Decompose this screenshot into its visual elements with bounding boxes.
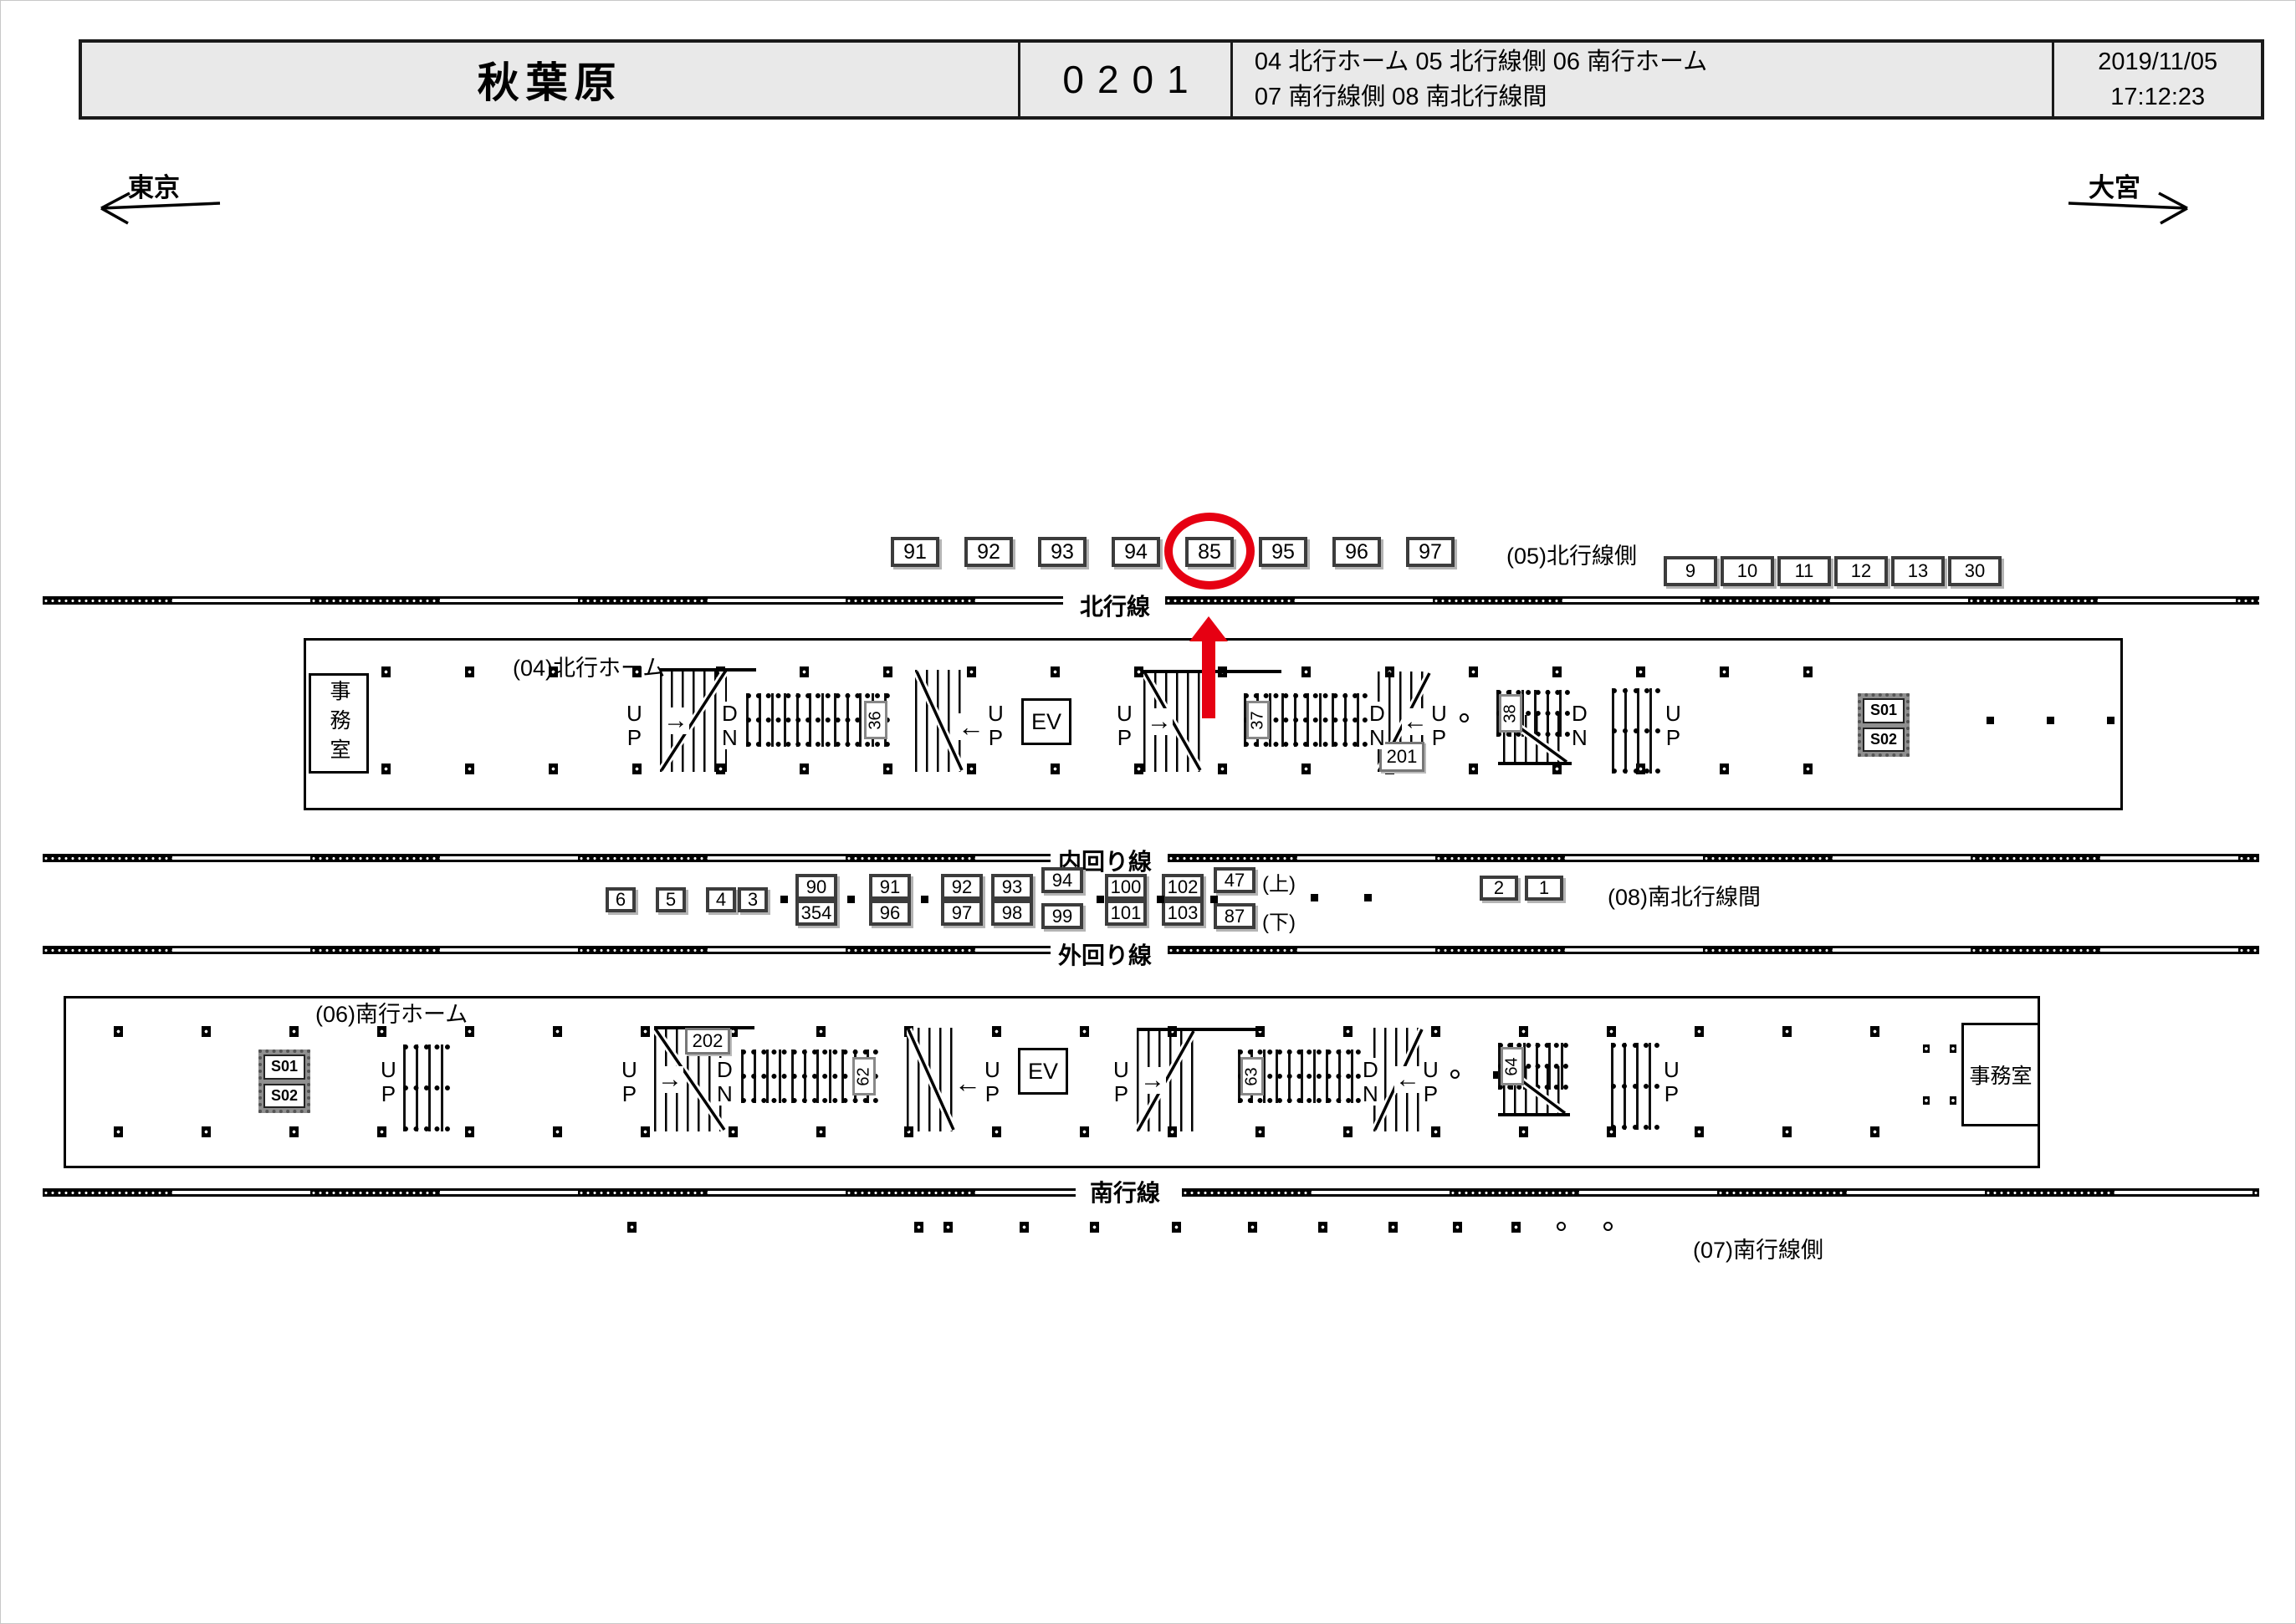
stair-direction-label: U P [381,1058,396,1106]
platform-pillar [1343,1026,1353,1037]
platform-pillar [1519,1026,1528,1037]
stair-direction-label: D N [1363,1058,1378,1106]
platform-pillar [1870,1126,1879,1137]
section-label-07: (07)南行線側 [1693,1232,1823,1264]
stair-direction-label: D N [1369,702,1385,749]
trackside-marker [1248,1222,1257,1233]
platform-pillar [1134,763,1143,774]
escalator-number: 37 [1249,711,1268,729]
platform-pillar [1803,666,1813,677]
escalator: 37 [1244,693,1368,747]
stair-direction-label: U P [984,1058,1000,1106]
platform-pillar [1134,666,1143,677]
camera-box-4[interactable]: 4 [706,887,736,912]
camera-box-97[interactable]: 97 [941,900,983,926]
platform-pillar [1343,1126,1353,1137]
time-value: 17:12:23 [2110,79,2205,115]
outer-loop-track-label: 外回り線 [1058,937,1152,971]
camera-box-92[interactable]: 92 [964,537,1013,567]
platform-pillar [1080,1126,1089,1137]
camera-box-103[interactable]: 103 [1162,900,1204,926]
timestamp: 2019/11/05 17:12:23 [2052,43,2261,116]
trackside-marker [1318,1222,1327,1233]
platform-pillar [883,666,892,677]
stair-direction-label: D N [722,702,738,749]
camera-box-13[interactable]: 13 [1891,556,1945,586]
southbound-track-line [43,1188,1076,1197]
camera-box-96[interactable]: 96 [1332,537,1381,567]
trackside-marker [627,1222,637,1233]
stair-direction-label: U P [621,1058,637,1106]
left-direction-arrow-icon [84,192,227,228]
camera-box-1[interactable]: 1 [1525,876,1563,901]
office-room-platform06: 事務室 [1961,1023,2040,1126]
stair-direction-label: U P [1431,702,1447,749]
platform-pillar [1695,1126,1704,1137]
marker-dot [1311,894,1318,901]
inner-loop-track-line [1168,854,2259,862]
platform-pillar [1051,763,1060,774]
platform-pillar [632,763,642,774]
escalator-number: 64 [1503,1057,1522,1075]
platform-pillar [465,763,474,774]
header-bar: 秋葉原 0201 04 北行ホーム 05 北行線側 06 南行ホーム 07 南行… [79,39,2264,120]
service-label-s02: S02 [263,1084,305,1109]
trackside-marker [914,1222,923,1233]
camera-box-354[interactable]: 354 [795,900,837,926]
office-label: 事務室 [1969,1060,2032,1090]
camera-box-98[interactable]: 98 [991,900,1033,926]
southbound-track-label: 南行線 [1090,1175,1160,1208]
platform-pillar [1636,666,1645,677]
marker-dot [780,896,788,903]
camera-box-101[interactable]: 101 [1105,900,1147,926]
stair-direction-label: U P [626,702,642,749]
escalator-number: 62 [855,1067,874,1085]
platform-pillar [1782,1026,1792,1037]
platform-pillar [381,763,391,774]
platform-pillar [729,1126,738,1137]
office-room-platform04: 事務室 [309,673,369,774]
marker-dot [921,896,928,903]
escalator: 36 [746,693,890,747]
platform-pillar [800,763,809,774]
marker-dot [1097,896,1104,903]
stair-landing-line [1498,762,1572,765]
platform-pillar [992,1126,1001,1137]
platform-pillar [1218,763,1227,774]
platform-pillar [1431,1126,1440,1137]
camera-box-95[interactable]: 95 [1259,537,1307,567]
legend-line-2: 07 南行線側 08 南北行線間 [1255,79,1547,115]
service-label-s02: S02 [1863,728,1905,753]
camera-box-99[interactable]: 99 [1041,903,1083,929]
platform-pillar [1720,763,1729,774]
platform-pillar [816,1126,826,1137]
camera-box-6[interactable]: 6 [606,887,636,912]
northbound-track-line [1165,596,2259,605]
platform-pillar [800,666,809,677]
platform-pillar [1607,1026,1616,1037]
camera-box-91[interactable]: 91 [891,537,939,567]
camera-legend: 04 北行ホーム 05 北行線側 06 南行ホーム 07 南行線側 08 南北行… [1230,43,2053,116]
camera-box-11[interactable]: 11 [1777,556,1831,586]
highlight-arrow-icon [1189,616,1228,641]
stair-landing-line [660,668,756,672]
station-camera-map-screen: 秋葉原 0201 04 北行ホーム 05 北行線側 06 南行ホーム 07 南行… [0,0,2296,1624]
platform-pillar [377,1126,386,1137]
marker-dot [1210,896,1218,903]
platform-pillar [381,666,391,677]
platform-dot-round [1450,1070,1460,1079]
camera-box-30[interactable]: 30 [1948,556,2002,586]
staircase: ← [1373,1028,1424,1131]
section-label-04: (04)北行ホーム [513,650,665,682]
escalator-number-box: 62 [852,1057,876,1095]
camera-box-47[interactable]: 47 [1214,867,1255,893]
platform-pillar [1782,1126,1792,1137]
platform-pillar [1950,1096,1956,1105]
stair-direction-arrow-icon: → [662,707,689,734]
stair-direction-arrow-icon: → [1139,1067,1166,1094]
legend-line-1: 04 北行ホーム 05 北行線側 06 南行ホーム [1255,44,1707,79]
camera-box-92[interactable]: 92 [941,874,983,900]
outer-loop-track-line [43,946,1051,954]
marker-dot [1364,894,1372,901]
platform-pillar [816,1026,826,1037]
camera-box-2[interactable]: 2 [1480,876,1518,901]
camera-box-12[interactable]: 12 [1834,556,1888,586]
platform-pillar [289,1026,299,1037]
camera-box-94[interactable]: 94 [1041,867,1083,893]
escalator-number: 36 [867,711,886,729]
camera-box-10[interactable]: 10 [1721,556,1774,586]
stair-landing-line [1498,1113,1570,1116]
platform-pillar [553,1126,562,1137]
stair-direction-label: U P [988,702,1004,749]
escalator-number-box: 64 [1501,1047,1524,1085]
marker-dot [1157,896,1164,903]
escalator-number-box: 37 [1246,701,1270,739]
platform-pillar [289,1126,299,1137]
platform-pillar [549,763,558,774]
platform-pillar [1301,763,1311,774]
stair-direction-arrow-icon: → [1146,708,1173,735]
platform-pillar [1469,666,1478,677]
platform-pillar [883,763,892,774]
platform-pillar [1519,1126,1528,1137]
platform-pillar [1695,1026,1704,1037]
platform-pillar [641,1126,650,1137]
southbound-track-line [1182,1188,2259,1197]
platform-pillar [553,1026,562,1037]
escalator [1611,1043,1659,1130]
platform-dot-round [1460,713,1469,723]
right-direction-arrow-icon [2063,192,2206,228]
northbound-track-line [43,596,1063,605]
platform-pillar [1720,666,1729,677]
platform-pillar [202,1126,211,1137]
staircase: → [660,670,727,772]
elevator-platform06: EV [1018,1048,1068,1095]
escalator-number-box: 36 [864,701,887,739]
platform-pillar [114,1026,123,1037]
platform-pillar [992,1026,1001,1037]
highlight-circle [1164,513,1255,590]
trackside-marker [943,1222,953,1233]
trackside-marker [1020,1222,1029,1233]
camera-box-9[interactable]: 9 [1664,556,1717,586]
marker-dot [847,896,855,903]
stair-direction-label: U P [1423,1058,1439,1106]
escalator-number: 38 [1501,704,1521,723]
platform-pillar [1431,1026,1440,1037]
escalator: 62 [741,1049,878,1103]
stair-number-201: 201 [1379,742,1424,772]
platform-pillar [1255,1126,1265,1137]
platform-pillar [1923,1044,1930,1053]
escalator [1612,688,1660,774]
stair-direction-arrow-icon: ← [1402,708,1429,735]
escalator-number-box: 63 [1240,1057,1264,1095]
trackside-marker [1090,1222,1099,1233]
stair-direction-arrow-icon: ← [1394,1066,1421,1093]
escalator [403,1044,450,1131]
platform-pillar [1950,1044,1956,1053]
staircase: → [1143,672,1202,772]
trackside-marker-round [1603,1222,1613,1231]
camera-box-5[interactable]: 5 [656,887,686,912]
platform-pillar [641,1026,650,1037]
service-box-platform06: S01 S02 [258,1049,310,1113]
stair-number-202: 202 [685,1028,730,1055]
platform-pillar [1870,1026,1879,1037]
camera-box-3[interactable]: 3 [738,887,768,912]
station-code: 0201 [1018,43,1230,116]
staircase [915,670,964,772]
escalator: 63 [1238,1049,1361,1103]
platform-pillar [465,1126,474,1137]
platform-dot [1987,717,1994,724]
date-value: 2019/11/05 [2098,44,2217,79]
service-label-s01: S01 [1863,698,1905,723]
trackside-marker-round [1557,1222,1566,1231]
camera-box-91[interactable]: 91 [869,874,911,900]
camera-box-94[interactable]: 94 [1112,537,1160,567]
trackside-marker [1388,1222,1398,1233]
escalator-number: 63 [1243,1067,1262,1085]
section-label-05: (05)北行線側 [1506,538,1637,570]
section-label-08: (08)南北行線間 [1608,879,1761,912]
lower-note: (下) [1262,906,1296,935]
camera-box-96[interactable]: 96 [869,900,911,926]
stair-landing-line [1137,1028,1262,1031]
camera-box-93[interactable]: 93 [1038,537,1087,567]
stair-direction-label: D N [1572,702,1588,749]
trackside-marker [1511,1222,1521,1233]
office-label: 事務室 [324,680,354,768]
stair-direction-label: D N [717,1058,733,1106]
stair-direction-label: U P [1665,702,1681,749]
platform-pillar [967,763,976,774]
stair-direction-arrow-icon: → [657,1066,683,1093]
stair-direction-label: U P [1664,1058,1680,1106]
camera-box-87[interactable]: 87 [1214,903,1255,929]
platform-pillar [1051,666,1060,677]
staircase: → [1137,1029,1195,1131]
camera-box-93[interactable]: 93 [991,874,1033,900]
outer-loop-track-line [1168,946,2259,954]
platform-pillar [465,666,474,677]
trackside-marker [1453,1222,1462,1233]
escalator-number-box: 38 [1499,694,1522,733]
camera-box-97[interactable]: 97 [1406,537,1455,567]
service-label-s01: S01 [263,1055,305,1080]
platform-pillar [1469,763,1478,774]
section-label-06: (06)南行ホーム [315,996,468,1029]
camera-box-102[interactable]: 102 [1162,874,1204,900]
left-arrow-icon: ← [958,713,984,740]
platform-pillar [967,666,976,677]
platform-dot [2107,717,2114,724]
camera-box-100[interactable]: 100 [1105,874,1147,900]
stair-direction-label: U P [1117,702,1133,749]
northbound-track-label: 北行線 [1080,589,1150,622]
highlight-arrow-stem [1202,640,1215,718]
trackside-marker [1172,1222,1181,1233]
platform-pillar [1803,763,1813,774]
stair-direction-label: U P [1113,1058,1129,1106]
left-arrow-icon: ← [954,1070,981,1096]
camera-box-90[interactable]: 90 [795,874,837,900]
station-title: 秋葉原 [82,43,1018,116]
elevator-platform04: EV [1021,698,1071,745]
platform-pillar [202,1026,211,1037]
staircase [907,1028,955,1131]
service-box-platform04: S01 S02 [1858,693,1910,757]
platform-pillar [1552,666,1562,677]
platform-pillar [1080,1026,1089,1037]
platform-dot [2047,717,2054,724]
inner-loop-track-line [43,854,1051,862]
platform-pillar [114,1126,123,1137]
platform-pillar [1923,1096,1930,1105]
upper-note: (上) [1262,867,1296,896]
platform-pillar [1301,666,1311,677]
